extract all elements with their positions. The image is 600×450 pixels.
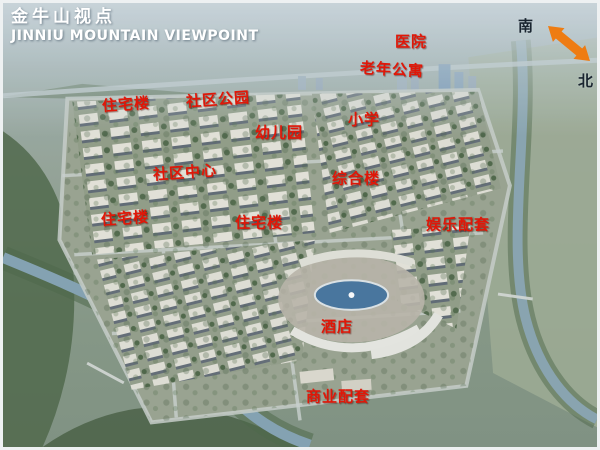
map-label-residential-1: 住宅楼 (101, 92, 150, 116)
viewpoint-title-english: JINNIU MOUNTAIN VIEWPOINT (11, 28, 259, 44)
map-label-community-park: 社区公园 (185, 86, 250, 111)
map-label-mixed-use-building: 综合楼 (332, 168, 380, 189)
map-label-hotel: 酒店 (321, 316, 353, 337)
map-label-elderly-apartments: 老年公寓 (359, 57, 424, 81)
viewpoint-title: 金牛山视点 JINNIU MOUNTAIN VIEWPOINT (11, 8, 259, 44)
map-label-kindergarten: 幼儿园 (255, 122, 303, 143)
map-label-primary-school: 小学 (348, 109, 380, 130)
compass-north-label: 北 (578, 70, 593, 91)
map-label-residential-3: 住宅楼 (235, 212, 283, 233)
map-label-commercial-facilities: 商业配套 (306, 386, 370, 407)
map-label-entertainment-facilities: 娱乐配套 (426, 214, 490, 235)
map-label-community-center: 社区中心 (152, 159, 217, 184)
rendering-viewport: 金牛山视点 JINNIU MOUNTAIN VIEWPOINT 南 北 医院 老… (0, 0, 600, 450)
map-label-hospital: 医院 (395, 31, 427, 52)
compass: 南 北 (508, 6, 600, 98)
map-label-residential-2: 住宅楼 (100, 206, 149, 230)
viewpoint-title-chinese: 金牛山视点 (11, 8, 259, 28)
compass-south-label: 南 (518, 15, 533, 36)
